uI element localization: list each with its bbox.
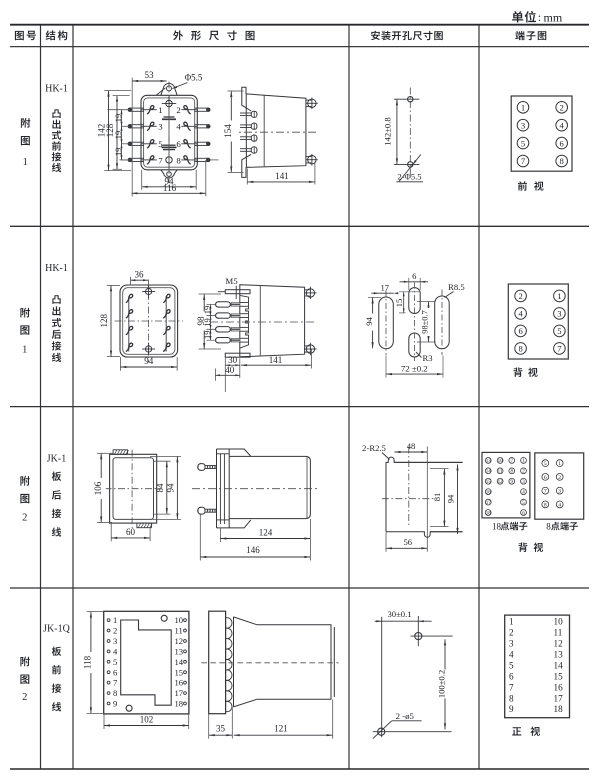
svg-text:1: 1 (22, 344, 27, 355)
svg-text:2: 2 (509, 628, 514, 638)
svg-text:128: 128 (99, 314, 109, 328)
svg-text:10: 10 (554, 617, 564, 627)
svg-text:53: 53 (145, 70, 155, 80)
svg-text:6: 6 (509, 671, 514, 681)
svg-text:5: 5 (113, 657, 117, 667)
svg-text:141: 141 (275, 171, 289, 181)
svg-text:7: 7 (509, 682, 514, 692)
svg-text:9: 9 (511, 480, 514, 485)
svg-text:6: 6 (560, 138, 565, 148)
svg-text:94: 94 (144, 356, 154, 366)
svg-text:5: 5 (521, 138, 525, 148)
svg-text:1: 1 (558, 461, 561, 467)
svg-text:6: 6 (518, 326, 523, 336)
svg-text:4: 4 (522, 490, 525, 495)
svg-text:94: 94 (445, 494, 455, 503)
svg-text:3: 3 (509, 639, 514, 649)
svg-text:60: 60 (126, 527, 136, 537)
svg-text:1: 1 (23, 157, 28, 168)
svg-text:141: 141 (269, 355, 283, 365)
svg-text:7: 7 (544, 489, 547, 495)
svg-text:4: 4 (113, 646, 118, 656)
svg-text:16: 16 (554, 682, 564, 692)
svg-text:18: 18 (175, 699, 184, 709)
svg-text:11: 11 (175, 626, 183, 636)
svg-text:142±0.8: 142±0.8 (382, 117, 392, 145)
svg-text:4: 4 (560, 120, 565, 130)
svg-text:R3: R3 (422, 353, 432, 363)
svg-text:15: 15 (554, 671, 564, 681)
svg-text:118: 118 (83, 655, 93, 669)
svg-text:M5: M5 (225, 276, 238, 286)
svg-text:8: 8 (518, 344, 522, 354)
svg-text:11: 11 (554, 628, 563, 638)
svg-text:2 -ø5: 2 -ø5 (396, 711, 415, 721)
svg-text:18: 18 (492, 522, 502, 532)
svg-text:2-Φ5.5: 2-Φ5.5 (397, 171, 421, 181)
svg-text:30±0.1: 30±0.1 (387, 609, 411, 619)
svg-text:19: 19 (203, 318, 212, 326)
svg-text:56: 56 (404, 537, 413, 547)
svg-text:100±0.2: 100±0.2 (437, 670, 447, 698)
svg-text:81: 81 (432, 493, 442, 502)
svg-text:3: 3 (558, 489, 561, 495)
svg-text:2: 2 (113, 626, 117, 636)
svg-text:15: 15 (394, 299, 404, 308)
svg-text:12: 12 (175, 636, 184, 646)
svg-text:3: 3 (113, 636, 117, 646)
svg-text:8: 8 (113, 688, 117, 698)
svg-text:3: 3 (521, 120, 525, 130)
svg-text:6: 6 (544, 475, 547, 481)
svg-text:18: 18 (554, 704, 564, 714)
svg-text:3: 3 (158, 122, 163, 132)
svg-text:8: 8 (511, 470, 514, 475)
svg-text:2-R2.5: 2-R2.5 (362, 443, 386, 453)
svg-text:4: 4 (518, 309, 523, 319)
svg-text:14: 14 (175, 657, 184, 667)
svg-text:5: 5 (158, 139, 163, 149)
svg-text:72 ±0.2: 72 ±0.2 (401, 363, 428, 373)
svg-text:10: 10 (498, 459, 504, 464)
svg-text:16: 16 (175, 678, 184, 688)
svg-text:116: 116 (163, 183, 177, 193)
svg-text::: : (538, 12, 541, 24)
svg-text:2: 2 (518, 291, 522, 301)
svg-text:4: 4 (176, 122, 181, 132)
svg-text:19: 19 (114, 131, 123, 139)
svg-text:40: 40 (225, 365, 235, 375)
svg-text:5: 5 (544, 461, 547, 467)
svg-text:R8.5: R8.5 (448, 282, 464, 292)
svg-text:3: 3 (557, 309, 561, 319)
svg-text:12: 12 (498, 480, 504, 485)
svg-text:17: 17 (175, 688, 184, 698)
svg-text:35: 35 (216, 724, 226, 734)
svg-text:8: 8 (544, 502, 547, 508)
svg-text:1: 1 (557, 291, 561, 301)
svg-text:8: 8 (546, 522, 551, 532)
svg-text:1: 1 (521, 103, 525, 113)
svg-text:1: 1 (158, 105, 162, 115)
svg-text:7: 7 (521, 156, 526, 166)
svg-text:5: 5 (557, 326, 561, 336)
svg-text:15: 15 (175, 667, 184, 677)
svg-text:19: 19 (114, 148, 123, 156)
svg-text:7: 7 (557, 344, 562, 354)
svg-text:2: 2 (522, 470, 525, 475)
svg-text:15: 15 (486, 480, 492, 485)
svg-text:19: 19 (114, 114, 123, 122)
svg-text:9: 9 (509, 704, 514, 714)
svg-text:6: 6 (176, 139, 181, 149)
svg-text:7: 7 (511, 459, 514, 464)
svg-text:98±0.7: 98±0.7 (421, 310, 430, 333)
svg-text:8: 8 (509, 693, 514, 703)
svg-text:11: 11 (498, 470, 503, 475)
svg-text:14: 14 (486, 470, 492, 475)
svg-text:14: 14 (554, 660, 564, 670)
svg-text:106: 106 (93, 481, 103, 495)
svg-text:94: 94 (165, 483, 175, 493)
svg-text:6: 6 (412, 271, 417, 281)
svg-text:1: 1 (509, 617, 514, 627)
svg-text:13: 13 (554, 650, 564, 660)
svg-text:3: 3 (522, 480, 525, 485)
svg-text:13: 13 (486, 459, 492, 464)
svg-text:17: 17 (381, 282, 390, 292)
svg-text:121: 121 (274, 724, 288, 734)
svg-text:19: 19 (203, 306, 212, 314)
svg-text:16: 16 (486, 490, 492, 495)
svg-text:2: 2 (560, 103, 564, 113)
svg-text:154: 154 (223, 124, 233, 138)
svg-text:36: 36 (135, 269, 145, 279)
svg-text:5: 5 (522, 501, 525, 506)
svg-text:4: 4 (509, 650, 514, 660)
svg-text:6: 6 (113, 667, 118, 677)
svg-text:19: 19 (203, 331, 212, 339)
svg-text:2: 2 (22, 692, 27, 703)
svg-text:8: 8 (176, 155, 181, 165)
svg-text:5: 5 (509, 660, 514, 670)
svg-text:94: 94 (364, 317, 374, 326)
svg-text:2: 2 (558, 475, 561, 481)
svg-text:13: 13 (175, 646, 184, 656)
svg-text:JK-1: JK-1 (47, 453, 66, 464)
svg-text:30: 30 (228, 355, 238, 365)
svg-text:10: 10 (175, 615, 184, 625)
svg-text:146: 146 (246, 545, 260, 555)
svg-text:2: 2 (176, 105, 180, 115)
svg-text:124: 124 (259, 527, 273, 537)
svg-text:102: 102 (140, 715, 154, 725)
svg-text:6: 6 (522, 511, 525, 516)
svg-text:Φ5.5: Φ5.5 (185, 73, 203, 83)
svg-text:HK-1: HK-1 (45, 263, 68, 274)
svg-text:JK-1Q: JK-1Q (43, 623, 70, 634)
svg-text:HK-1: HK-1 (45, 84, 68, 95)
svg-text:2: 2 (22, 513, 27, 524)
svg-text:8: 8 (560, 156, 564, 166)
svg-text:1: 1 (113, 615, 117, 625)
svg-text:9: 9 (113, 699, 117, 709)
svg-text:17: 17 (486, 501, 492, 506)
svg-text:12: 12 (554, 639, 564, 649)
svg-text:18: 18 (486, 511, 492, 516)
svg-text:mm: mm (544, 11, 563, 25)
svg-text:4: 4 (558, 502, 561, 508)
svg-text:17: 17 (554, 693, 564, 703)
svg-text:84: 84 (155, 483, 165, 493)
svg-text:7: 7 (113, 678, 118, 688)
svg-text:7: 7 (158, 155, 163, 165)
svg-text:48: 48 (407, 441, 416, 451)
svg-text:1: 1 (522, 459, 525, 464)
